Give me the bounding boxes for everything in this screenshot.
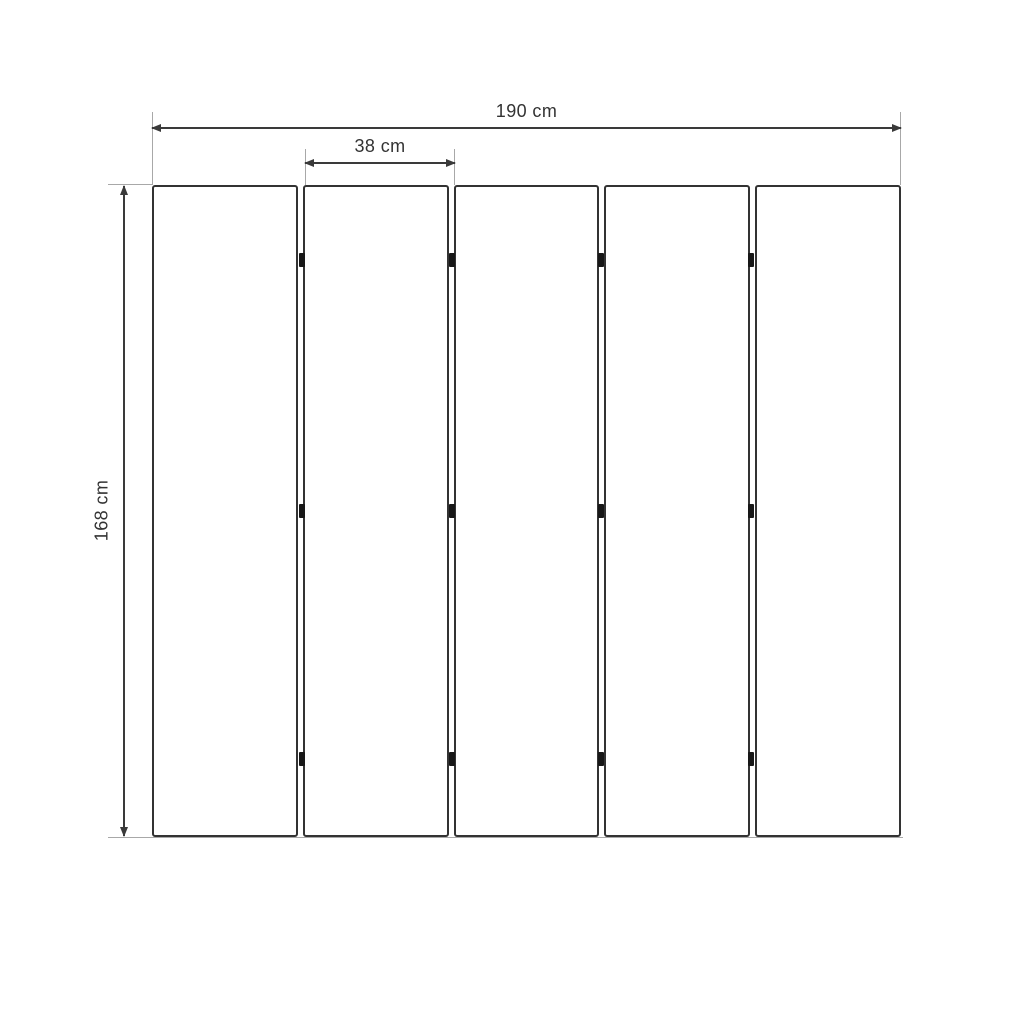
- hinge-column: [748, 185, 754, 837]
- panel-width-label: 38 cm: [305, 136, 455, 157]
- extension-line-height-bottom: [108, 837, 903, 838]
- hinge-icon: [449, 504, 455, 518]
- panel: [604, 185, 750, 837]
- panel-width-dimension-line: [305, 162, 455, 164]
- hinge-column: [598, 185, 604, 837]
- panel: [454, 185, 600, 837]
- panel: [152, 185, 298, 837]
- hinge-icon: [598, 504, 604, 518]
- arrowhead-right-icon: [446, 159, 456, 167]
- arrowhead-left-icon: [304, 159, 314, 167]
- hinge-icon: [299, 752, 305, 766]
- height-dimension-line: [123, 186, 125, 836]
- arrowhead-up-icon: [120, 185, 128, 195]
- extension-line-total-right: [900, 112, 901, 185]
- total-width-label: 190 cm: [152, 101, 901, 122]
- extension-line-height-top: [108, 184, 153, 185]
- total-width-dimension-line: [152, 127, 901, 129]
- panel: [755, 185, 901, 837]
- hinge-icon: [299, 253, 305, 267]
- extension-line-total-left: [152, 112, 153, 185]
- arrowhead-left-icon: [151, 124, 161, 132]
- hinge-column: [449, 185, 455, 837]
- hinge-icon: [598, 752, 604, 766]
- height-label: 168 cm: [92, 461, 113, 561]
- dimension-drawing: 190 cm 38 cm 168 cm: [0, 0, 1024, 1024]
- hinge-icon: [598, 253, 604, 267]
- hinge-column: [299, 185, 305, 837]
- hinge-icon: [748, 752, 754, 766]
- hinge-icon: [748, 504, 754, 518]
- hinge-icon: [449, 253, 455, 267]
- hinge-icon: [748, 253, 754, 267]
- hinge-icon: [299, 504, 305, 518]
- panel-group: [152, 185, 901, 837]
- arrowhead-right-icon: [892, 124, 902, 132]
- arrowhead-down-icon: [120, 827, 128, 837]
- panel: [303, 185, 449, 837]
- hinge-icon: [449, 752, 455, 766]
